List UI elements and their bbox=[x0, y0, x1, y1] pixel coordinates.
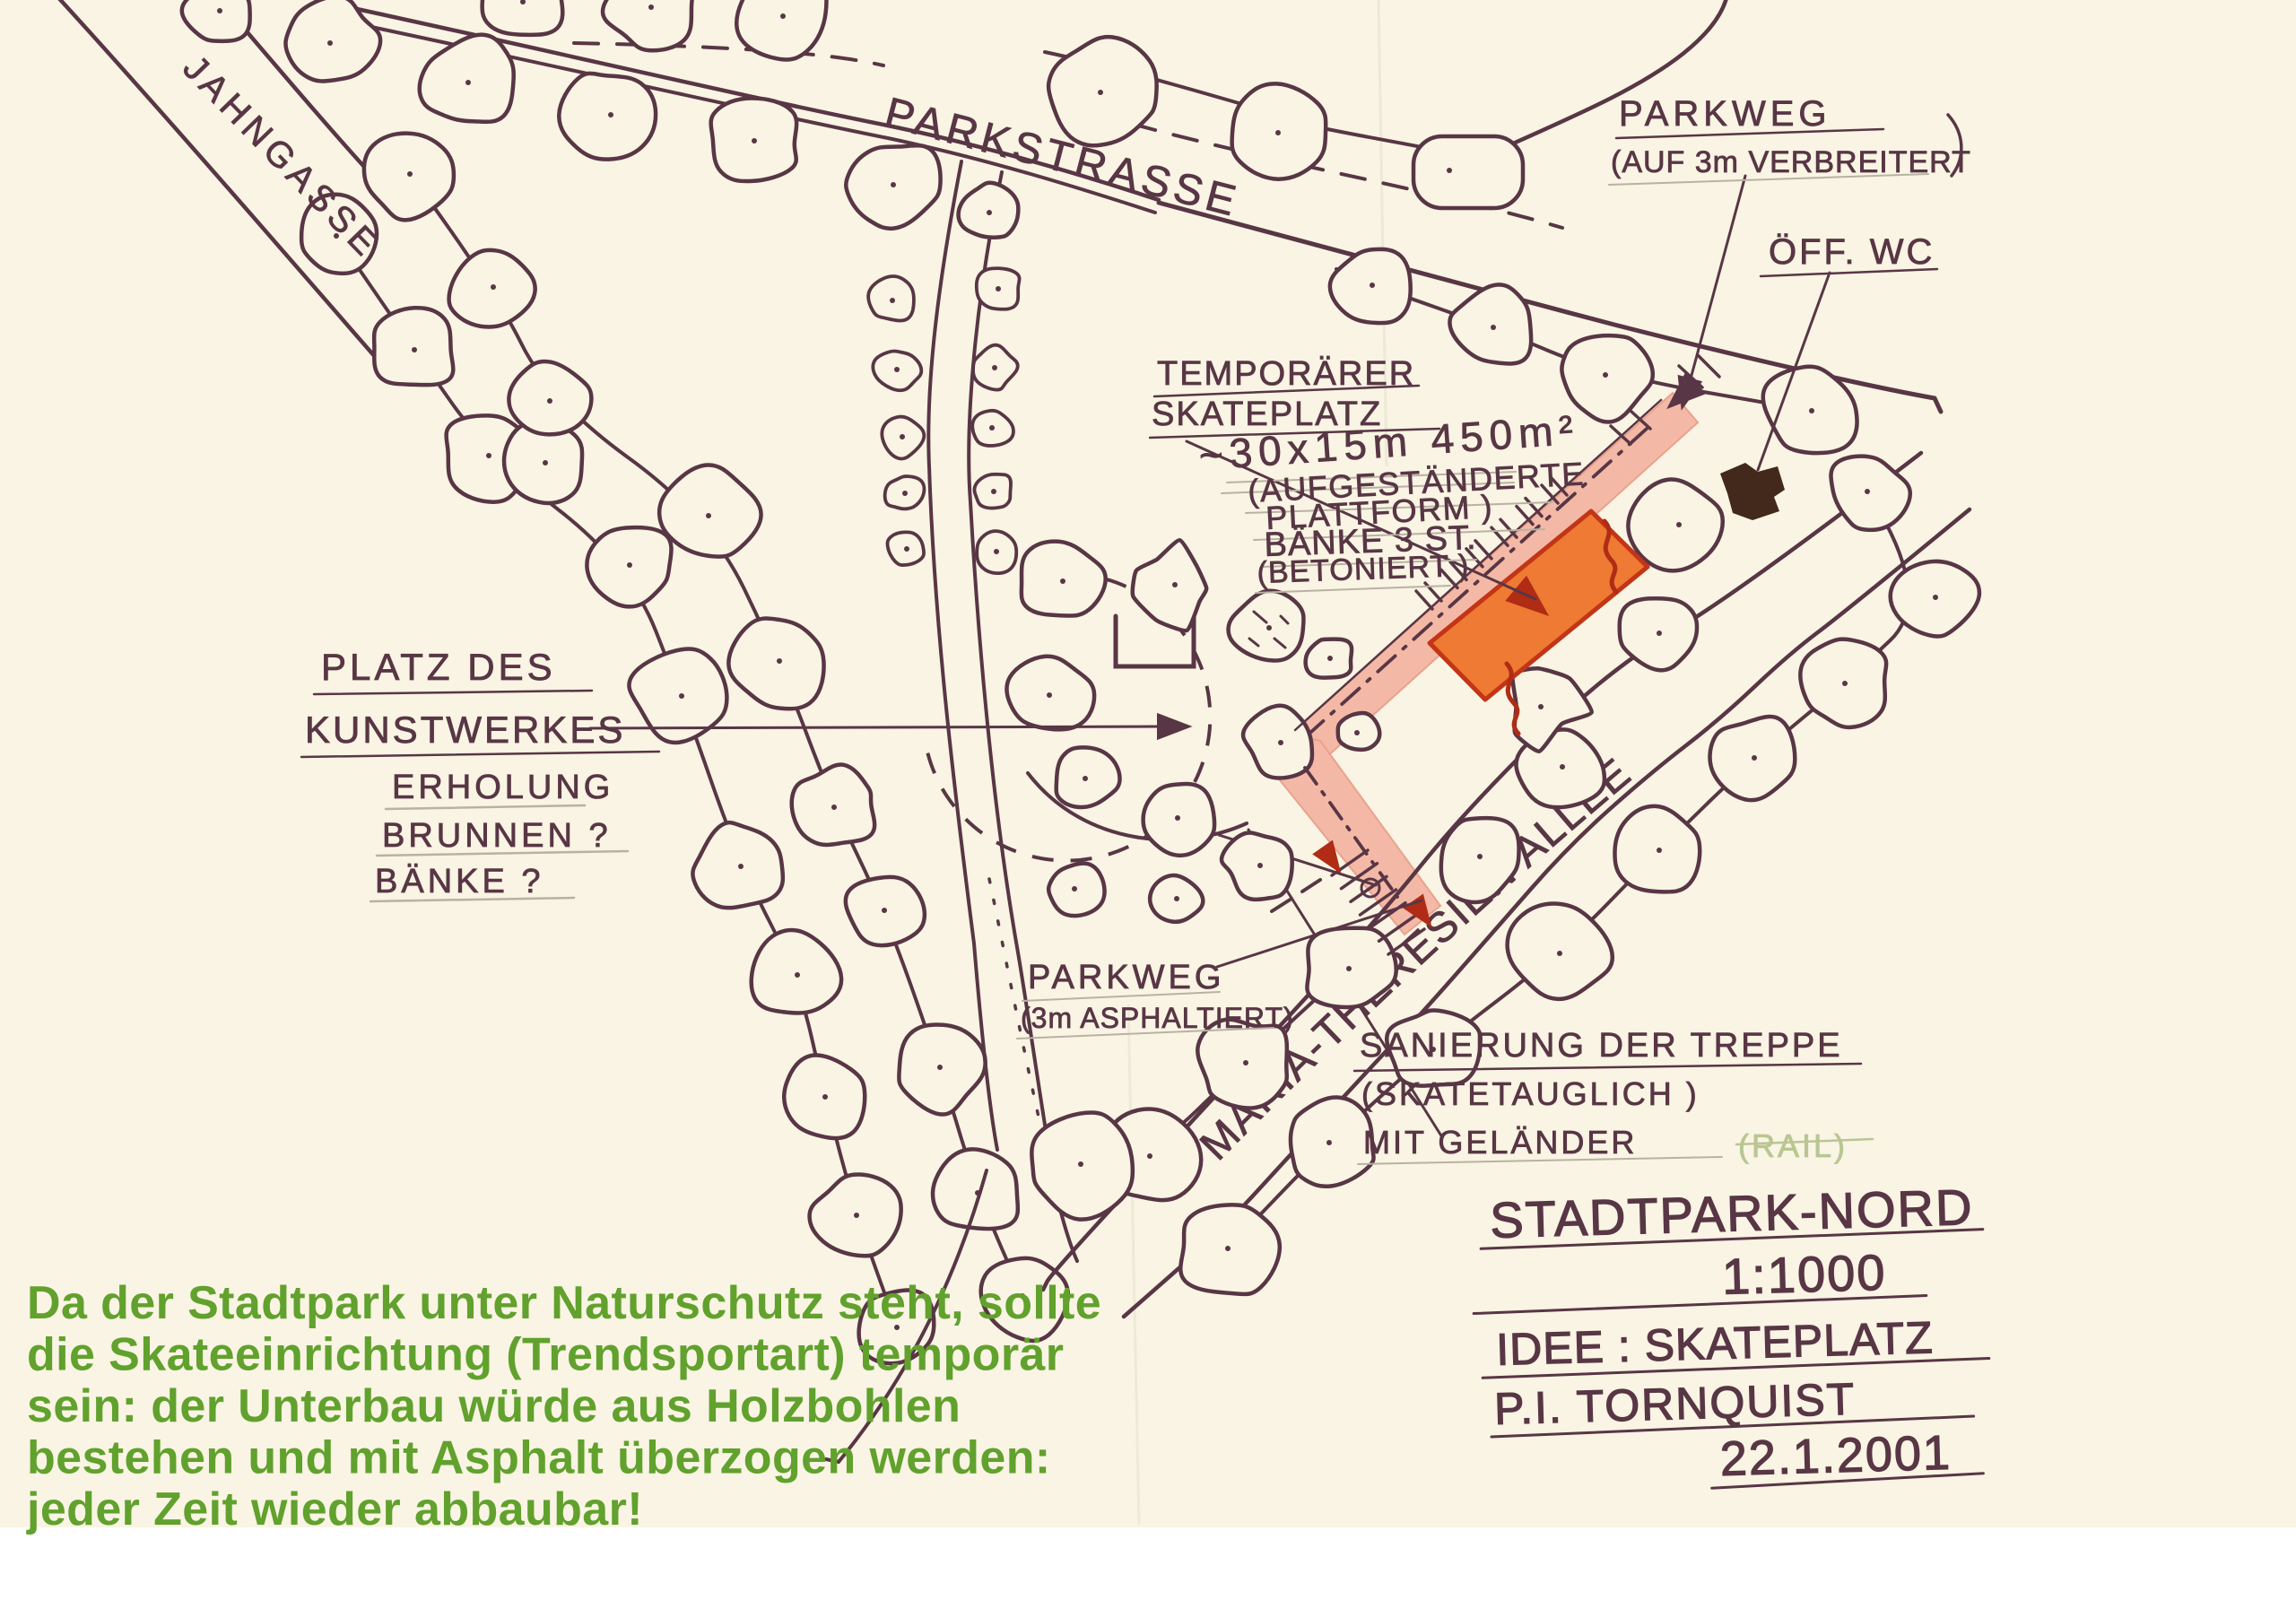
svg-text:PARKWEG: PARKWEG bbox=[1028, 959, 1224, 996]
svg-text:PLATZ DES: PLATZ DES bbox=[321, 646, 556, 688]
svg-text:BRUNNEN ?: BRUNNEN ? bbox=[382, 817, 612, 855]
svg-text:MIT GELÄNDER: MIT GELÄNDER bbox=[1363, 1124, 1637, 1161]
svg-text:KUNSTWERKES: KUNSTWERKES bbox=[305, 709, 625, 751]
svg-text:sein: der Unterbau würde aus H: sein: der Unterbau würde aus Holzbohlen bbox=[27, 1380, 961, 1432]
svg-text:bestehen und mit Asphalt überz: bestehen und mit Asphalt überzogen werde… bbox=[27, 1432, 1051, 1484]
svg-text:die Skateeinrichtung (Trendsp: die Skateeinrichtung (Trendsportart) tem… bbox=[27, 1329, 1064, 1381]
svg-text:ÖFF. WC: ÖFF. WC bbox=[1769, 232, 1935, 272]
svg-text:ERHOLUNG: ERHOLUNG bbox=[392, 769, 613, 806]
svg-text:(RAIL): (RAIL) bbox=[1738, 1127, 1848, 1164]
svg-text:BÄNKE ?: BÄNKE ? bbox=[375, 863, 544, 900]
svg-text:SANIERUNG DER TREPPE: SANIERUNG DER TREPPE bbox=[1360, 1027, 1843, 1065]
svg-text:1:1000: 1:1000 bbox=[1721, 1244, 1887, 1305]
svg-text:Da der Stadtpark unter Natursc: Da der Stadtpark unter Naturschutz steht… bbox=[27, 1277, 1101, 1329]
svg-text:P.I. TORNQUIST: P.I. TORNQUIST bbox=[1493, 1374, 1857, 1434]
svg-text:(SKATETAUGLICH ): (SKATETAUGLICH ) bbox=[1361, 1075, 1700, 1112]
svg-text:jeder Zeit wieder abbaubar!: jeder Zeit wieder abbaubar! bbox=[26, 1483, 643, 1535]
svg-text:PARKWEG: PARKWEG bbox=[1619, 94, 1831, 134]
